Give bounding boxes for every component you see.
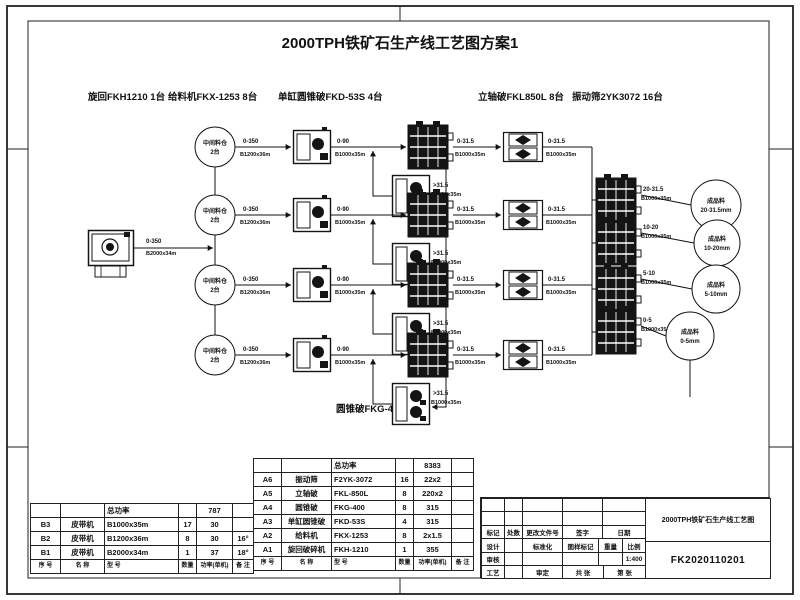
belt-name-label: B1000x35m xyxy=(641,196,671,202)
belt-size-label: 0-31.5 xyxy=(457,139,475,145)
product-range: 20-31.5mm xyxy=(700,208,731,214)
table-cell: 315 xyxy=(414,501,452,515)
table-cell: 圆锥破 xyxy=(282,501,332,515)
belt-size-label: 0-31.5 xyxy=(457,277,475,283)
bin-count: 2台 xyxy=(210,148,219,156)
titleblock-cell xyxy=(481,511,505,526)
bin-label: 中间料仓 xyxy=(203,347,228,355)
bin-label: 中间料仓 xyxy=(203,139,228,147)
belt-name-label: B1000x35m xyxy=(455,152,485,158)
table-cell xyxy=(31,504,61,518)
gyratory-crusher-icon xyxy=(89,231,134,278)
fkd-crusher-icon xyxy=(294,265,331,302)
feed-size-label: 0-350 xyxy=(146,239,162,245)
fkl-crusher-icon xyxy=(504,341,543,370)
table-cell: 18° xyxy=(233,546,254,560)
fkg-crusher-icon xyxy=(393,384,430,425)
belt-size-label: 0-350 xyxy=(243,139,259,145)
table-cell: FKX-1253 xyxy=(332,529,396,543)
titleblock-drawing-title: 2000TPH铁矿石生产线工艺图 xyxy=(645,498,771,542)
titleblock-cell xyxy=(522,498,563,512)
collector-line xyxy=(592,147,596,355)
table-cell: 单缸圆锥破 xyxy=(282,515,332,529)
table-cell xyxy=(452,459,474,473)
titleblock-standard: 标准化 xyxy=(522,538,563,553)
titleblock-approve: 审定 xyxy=(522,565,563,579)
table-cell xyxy=(452,487,474,501)
titleblock-cell xyxy=(562,511,603,526)
intermediate-bin xyxy=(195,195,235,235)
table-cell: FKG-400 xyxy=(332,501,396,515)
table-cell: 皮带机 xyxy=(61,532,105,546)
bin-count: 2台 xyxy=(210,286,219,294)
table-cell: 功率(单机) xyxy=(414,557,452,571)
table-cell: 4 xyxy=(396,515,414,529)
table-cell: 315 xyxy=(414,515,452,529)
table-cell xyxy=(233,518,254,532)
titleblock-drawing-number: FK2020110201 xyxy=(645,541,771,579)
product-name: 成品料 xyxy=(708,235,726,243)
belt-name-label: B1000x35m xyxy=(546,290,576,296)
belt-name-label: B1000x35m xyxy=(546,360,576,366)
table-cell: 787 xyxy=(197,504,233,518)
table-cell: 名 称 xyxy=(282,557,332,571)
table-cell xyxy=(452,473,474,487)
screen-icon xyxy=(408,189,453,237)
bin-count: 2台 xyxy=(210,356,219,364)
table-cell: B1 xyxy=(31,546,61,560)
table-cell: 数量 xyxy=(179,560,197,574)
belt-size-label: 0-31.5 xyxy=(548,207,566,213)
legend-feeder: 给料机FKX-1253 8台 xyxy=(168,91,258,103)
titleblock-cell xyxy=(602,511,646,526)
legend-gyratory: 旋回FKH1210 1台 xyxy=(87,91,166,103)
table-cell: FKH-1210 xyxy=(332,543,396,557)
legend-screen: 振动筛2YK3072 16台 xyxy=(572,91,663,103)
belt-name-label: B1200x36m xyxy=(240,360,270,366)
table-cell: A5 xyxy=(254,487,282,501)
oversize-label: >31.5 xyxy=(433,321,449,327)
table-cell: B1000x35m xyxy=(105,518,179,532)
legend-single-cone: 单缸圆锥破FKD-53S 4台 xyxy=(278,91,383,103)
titleblock-cell xyxy=(522,552,563,566)
table-cell: 1 xyxy=(396,543,414,557)
table-cell: B2000x34m xyxy=(105,546,179,560)
table-cell: A4 xyxy=(254,501,282,515)
table-cell: FKD-53S xyxy=(332,515,396,529)
legend-vsi: 立轴破FKL850L 8台 xyxy=(478,91,564,103)
titleblock-stamp: 图样标记 xyxy=(562,538,599,553)
intermediate-bin xyxy=(195,335,235,375)
product-range: 10-20mm xyxy=(704,246,730,252)
table-cell xyxy=(452,543,474,557)
titleblock-date: 日期 xyxy=(602,525,646,539)
table-cell: 8 xyxy=(396,529,414,543)
belt-name-label: B1000x35m xyxy=(546,220,576,226)
table-cell: 8 xyxy=(396,487,414,501)
fkl-crusher-icon xyxy=(504,133,543,162)
table-cell: 8 xyxy=(179,532,197,546)
titleblock-cell xyxy=(504,498,523,512)
belt-name-label: B1200x36m xyxy=(240,290,270,296)
screen-icon xyxy=(408,329,453,377)
oversize-label: >31.5 xyxy=(433,183,449,189)
table-cell: 备 注 xyxy=(452,557,474,571)
belt-size-label: 0-90 xyxy=(337,277,350,283)
product-size-label: 20-31.5 xyxy=(643,187,664,193)
table-cell: 型 号 xyxy=(105,560,179,574)
fkd-crusher-icon xyxy=(294,127,331,164)
table-cell: B3 xyxy=(31,518,61,532)
table-cell: 备 注 xyxy=(233,560,254,574)
belt-name-label: B1000x35m xyxy=(455,360,485,366)
titleblock-cell xyxy=(598,552,623,566)
table-cell: 总功率 xyxy=(105,504,179,518)
table-cell: A3 xyxy=(254,515,282,529)
titleblock-check: 审核 xyxy=(481,552,505,566)
belt-name-label: B1000x35m xyxy=(431,400,461,406)
belt-name-label: B1000x35m xyxy=(641,280,671,286)
product-name: 成品料 xyxy=(681,328,699,336)
intermediate-bin xyxy=(195,265,235,305)
table-cell: 2x1.5 xyxy=(414,529,452,543)
table-cell: A6 xyxy=(254,473,282,487)
table-cell xyxy=(452,501,474,515)
titleblock-cell xyxy=(504,538,523,553)
titleblock-cell xyxy=(562,498,603,512)
belt-size-label: 0-90 xyxy=(337,139,350,145)
belt-name-label: B1000x35m xyxy=(335,152,365,158)
belt-size-label: 0-31.5 xyxy=(457,207,475,213)
product-4: 0-5 B1000x35m 成品料 0-5mm xyxy=(641,312,714,397)
fkl-crusher-icon xyxy=(504,201,543,230)
product-size-label: 5-10 xyxy=(643,271,656,277)
titleblock-sheet: 第 张 xyxy=(603,565,646,579)
product-circle xyxy=(692,265,740,313)
table-cell: 给料机 xyxy=(282,529,332,543)
belt-name-label: B1200x36m xyxy=(240,152,270,158)
table-cell: 皮带机 xyxy=(61,518,105,532)
belt-size-label: 0-90 xyxy=(337,347,350,353)
belt-name-label: B1000x35m xyxy=(546,152,576,158)
table-cell: B1200x36m xyxy=(105,532,179,546)
intermediate-bin xyxy=(195,127,235,167)
screen-icon xyxy=(408,121,453,169)
bin-count: 2台 xyxy=(210,216,219,224)
drawing-sheet: 2000TPH铁矿石生产线工艺图方案1 旋回FKH1210 1台 给料机FKX-… xyxy=(0,0,800,600)
table-cell xyxy=(233,504,254,518)
final-screen-bank xyxy=(596,174,641,354)
titleblock-cell xyxy=(562,552,599,566)
table-cell: 序 号 xyxy=(31,560,61,574)
bin-label: 中间料仓 xyxy=(203,207,228,215)
belt-name-label: B1000x35m xyxy=(335,220,365,226)
fkl-crusher-icon xyxy=(504,271,543,300)
oversize-label: >31.5 xyxy=(433,251,449,257)
titleblock-weight: 重量 xyxy=(598,538,623,553)
table-cell: A1 xyxy=(254,543,282,557)
product-3: 5-10 B1000x35m 成品料 5-10mm xyxy=(641,265,740,313)
belt-size-label: 0-90 xyxy=(337,207,350,213)
table-cell: 37 xyxy=(197,546,233,560)
titleblock-cell xyxy=(504,565,523,579)
product-circle xyxy=(666,312,714,360)
table-cell: 序 号 xyxy=(254,557,282,571)
table-cell xyxy=(179,504,197,518)
belt-size-label: 0-350 xyxy=(243,347,259,353)
belt-size-label: 0-31.5 xyxy=(548,277,566,283)
product-range: 0-5mm xyxy=(680,339,699,345)
equipment-table: 总功率8383A6振动筛F2YK-30721622x2A5立轴破FKL-850L… xyxy=(253,458,474,571)
titleblock-sign: 签字 xyxy=(562,525,603,539)
table-cell xyxy=(282,459,332,473)
product-range: 5-10mm xyxy=(705,292,728,298)
titleblock-cell xyxy=(602,498,646,512)
table-cell: 16° xyxy=(233,532,254,546)
titleblock-cell xyxy=(522,511,563,526)
titleblock-change-doc: 更改文件号 xyxy=(522,525,563,539)
fkd-crusher-icon xyxy=(294,195,331,232)
table-cell xyxy=(254,459,282,473)
table-cell: 16 xyxy=(396,473,414,487)
table-cell: 数量 xyxy=(396,557,414,571)
belt-name-label: B1000x35m xyxy=(335,360,365,366)
page-title: 2000TPH铁矿石生产线工艺图方案1 xyxy=(282,34,519,52)
table-cell: 1 xyxy=(179,546,197,560)
titleblock-mark: 标记 xyxy=(481,525,505,539)
table-cell: 220x2 xyxy=(414,487,452,501)
titleblock-scale: 比例 xyxy=(622,538,646,553)
table-cell: FKL-850L xyxy=(332,487,396,501)
belt-name-label: B1000x35m xyxy=(335,290,365,296)
table-cell: 振动筛 xyxy=(282,473,332,487)
table-cell xyxy=(396,459,414,473)
table-cell: F2YK-3072 xyxy=(332,473,396,487)
product-name: 成品料 xyxy=(707,281,725,289)
titleblock-cell xyxy=(481,498,505,512)
table-cell: 8383 xyxy=(414,459,452,473)
table-cell: 功率(单机) xyxy=(197,560,233,574)
fkd-crusher-icon xyxy=(294,335,331,372)
titleblock-qty: 处数 xyxy=(504,525,523,539)
belt-size-label: 0-350 xyxy=(243,277,259,283)
product-circle xyxy=(694,220,740,266)
titleblock-cell xyxy=(504,552,523,566)
table-cell: 30 xyxy=(197,518,233,532)
table-cell: B2 xyxy=(31,532,61,546)
screen-icon xyxy=(408,259,453,307)
belt-size-label: 0-31.5 xyxy=(548,347,566,353)
table-cell: 8 xyxy=(396,501,414,515)
titleblock-scale-value: 1:400 xyxy=(622,552,646,566)
titleblock-design: 设计 xyxy=(481,538,505,553)
table-cell: 总功率 xyxy=(332,459,396,473)
belt-name-label: B1000x35m xyxy=(455,220,485,226)
table-cell: 22x2 xyxy=(414,473,452,487)
table-cell xyxy=(452,529,474,543)
belt-conveyor-table: 总功率787B3皮带机B1000x35m1730B2皮带机B1200x36m83… xyxy=(30,503,254,574)
belt-size-label: 0-31.5 xyxy=(548,139,566,145)
belt-size-label: 0-350 xyxy=(243,207,259,213)
titleblock-process: 工艺 xyxy=(481,565,505,579)
table-cell xyxy=(61,504,105,518)
belt-name-label: B1200x36m xyxy=(240,220,270,226)
belt-name-label: B1000x35m xyxy=(641,234,671,240)
titleblock-cell xyxy=(504,511,523,526)
table-cell: 名 称 xyxy=(61,560,105,574)
table-cell: 30 xyxy=(197,532,233,546)
table-cell: A2 xyxy=(254,529,282,543)
belt-size-label: 0-31.5 xyxy=(457,347,475,353)
title-block: 标记 处数 更改文件号 签字 日期 设计 标准化 图样标记 重量 比例 审核 1… xyxy=(480,497,770,578)
belt-name-label: B1000x35m xyxy=(455,290,485,296)
table-cell: 17 xyxy=(179,518,197,532)
product-name: 成品料 xyxy=(707,197,725,205)
product-size-label: 0-5 xyxy=(643,318,652,324)
table-cell: 355 xyxy=(414,543,452,557)
table-cell: 皮带机 xyxy=(61,546,105,560)
table-cell: 立轴破 xyxy=(282,487,332,501)
oversize-label: >31.5 xyxy=(433,391,449,397)
feed-belt-label: B2000x34m xyxy=(146,251,176,257)
table-cell: 型 号 xyxy=(332,557,396,571)
bin-label: 中间料仓 xyxy=(203,277,228,285)
table-cell: 旋回破碎机 xyxy=(282,543,332,557)
table-cell xyxy=(452,515,474,529)
product-size-label: 10-20 xyxy=(643,225,659,231)
titleblock-total-sheet: 共 张 xyxy=(562,565,604,579)
product-2: 10-20 B1000x35m 成品料 10-20mm xyxy=(641,220,740,266)
